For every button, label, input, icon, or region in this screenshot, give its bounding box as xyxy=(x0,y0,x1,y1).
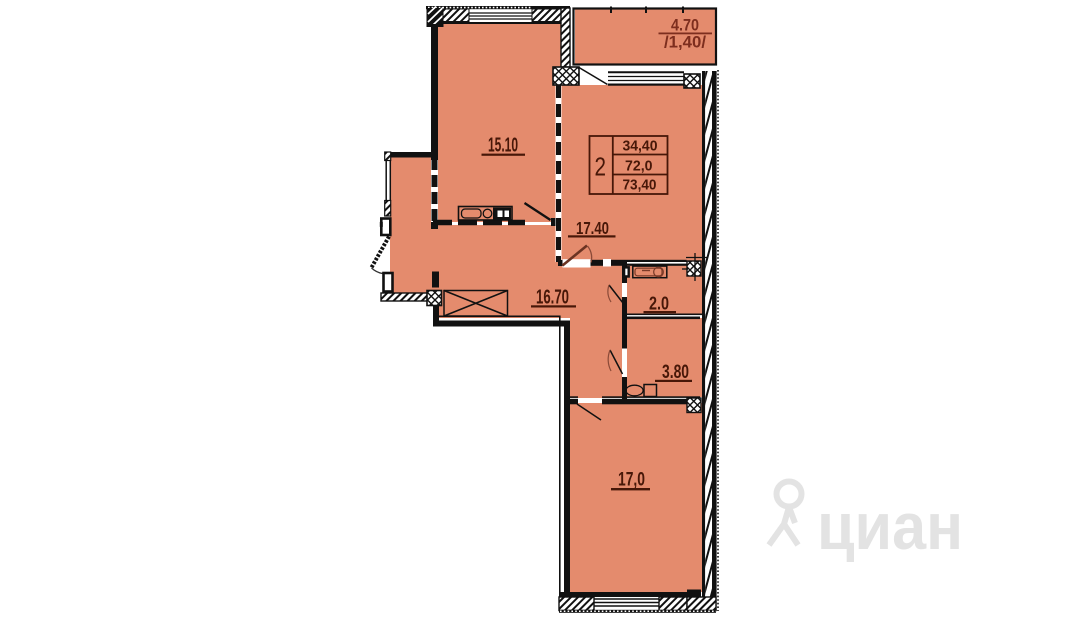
svg-text:4.70: 4.70 xyxy=(671,17,699,35)
svg-text:17,0: 17,0 xyxy=(618,470,645,491)
svg-text:/1,40/: /1,40/ xyxy=(664,34,706,52)
svg-text:15.10: 15.10 xyxy=(488,135,518,157)
svg-text:72,0: 72,0 xyxy=(625,159,653,175)
svg-text:73,40: 73,40 xyxy=(623,178,657,194)
svg-text:16.70: 16.70 xyxy=(536,287,569,309)
svg-text:2: 2 xyxy=(595,152,607,182)
svg-text:34,40: 34,40 xyxy=(623,138,658,154)
svg-text:циан: циан xyxy=(817,489,963,563)
svg-text:2.0: 2.0 xyxy=(649,294,669,314)
svg-text:17.40: 17.40 xyxy=(576,218,609,238)
